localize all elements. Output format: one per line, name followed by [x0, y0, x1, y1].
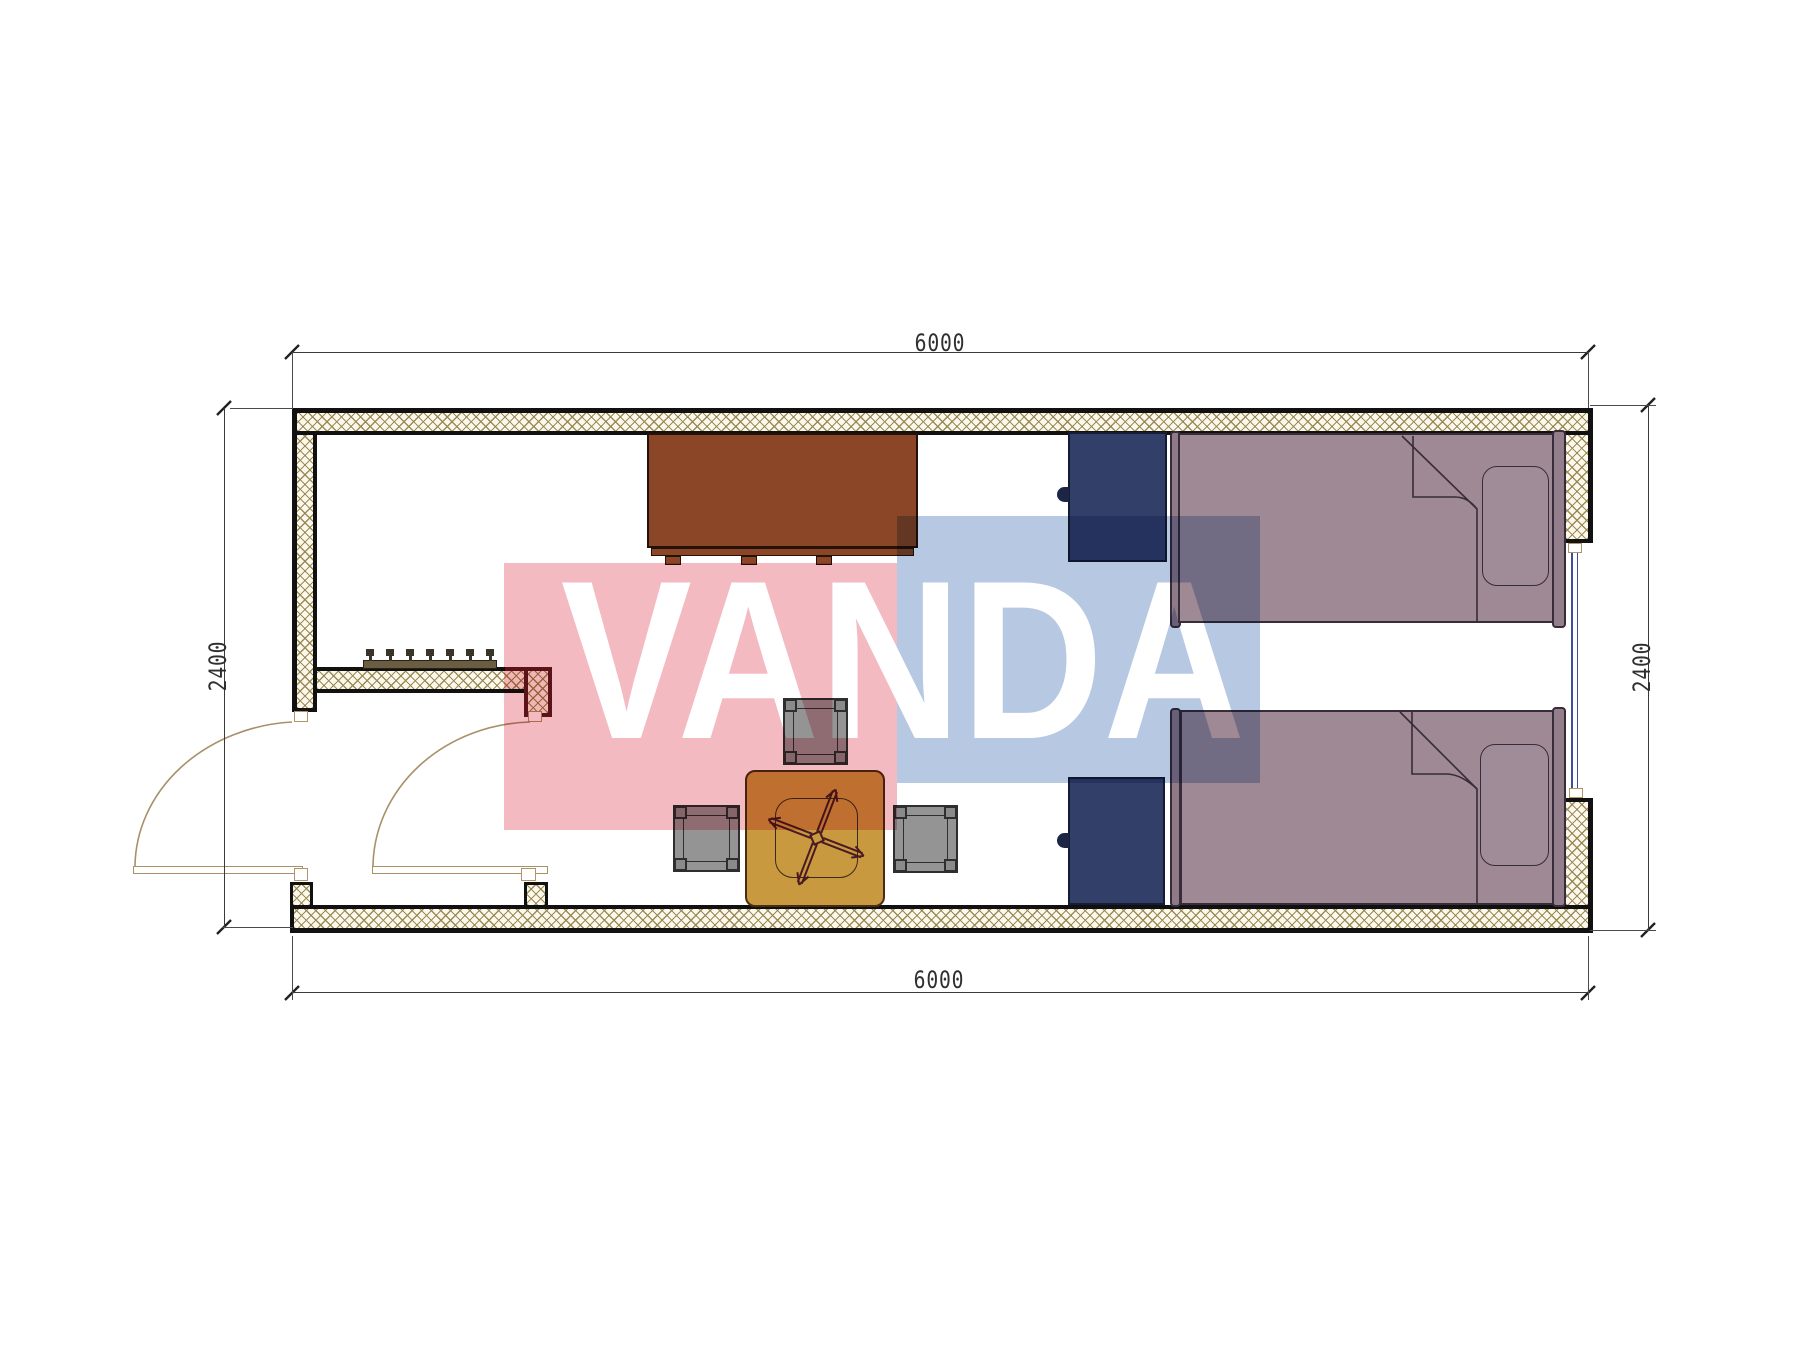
linework-overlay: [0, 0, 1800, 1350]
extension-line: [292, 936, 293, 1000]
extension-line: [230, 408, 293, 409]
blanket-fold-bottom-bed: [1400, 712, 1477, 903]
dimension-label-top: 6000: [899, 329, 981, 351]
blanket-fold-top-bed: [1402, 436, 1477, 622]
floor-plan-canvas: 6000 6000 2400 2400 VANDA: [0, 0, 1800, 1350]
office-chair-symbol: [751, 771, 883, 903]
extension-line: [292, 352, 293, 408]
dimension-tick: [217, 345, 1655, 1000]
door-swing-arc: [373, 722, 530, 866]
door-swing-arc: [135, 722, 292, 866]
extension-line: [1590, 405, 1656, 406]
dimension-label-left: 2400: [204, 625, 226, 707]
extension-line: [1590, 930, 1656, 931]
dimension-label-right: 2400: [1628, 626, 1650, 708]
extension-line: [222, 927, 293, 928]
extension-line: [1588, 936, 1589, 1000]
extension-line: [1588, 352, 1589, 408]
dimension-label-bottom: 6000: [898, 966, 980, 988]
